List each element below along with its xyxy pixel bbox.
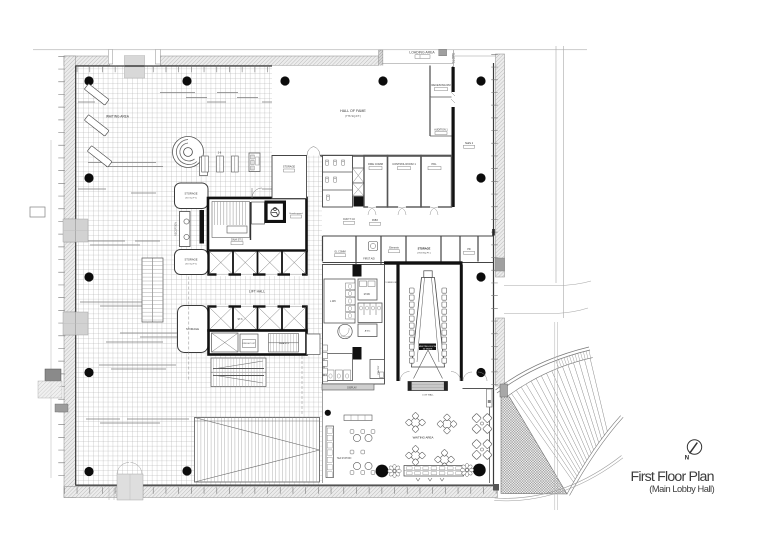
svg-text:LOW WALL: LOW WALL	[422, 394, 434, 397]
svg-text:ST-6: ST-6	[237, 318, 243, 321]
svg-text:PD: PD	[467, 248, 471, 251]
svg-text:FREIGHT LIFT: FREIGHT LIFT	[243, 343, 257, 345]
svg-text:GL COMM: GL COMM	[334, 251, 345, 254]
svg-text:(XX SQ.FT.): (XX SQ.FT.)	[185, 264, 197, 266]
svg-text:(Main Lobby Hall): (Main Lobby Hall)	[649, 484, 715, 494]
svg-text:STORAGE: STORAGE	[184, 192, 197, 196]
svg-text:L WC: L WC	[330, 300, 336, 303]
svg-text:AUDITION 1: AUDITION 1	[434, 129, 448, 132]
svg-text:RECEIVING RM: RECEIVING RM	[431, 83, 450, 87]
svg-text:(78.8 SQ.FT.): (78.8 SQ.FT.)	[417, 253, 430, 255]
svg-text:STORAGE: STORAGE	[186, 327, 199, 331]
svg-text:CORRIDOR: CORRIDOR	[385, 282, 397, 284]
svg-text:FIRST AID: FIRST AID	[363, 258, 375, 261]
svg-text:LIFT HALL: LIFT HALL	[249, 290, 265, 294]
svg-text:DN/A ST-2: DN/A ST-2	[231, 239, 243, 242]
svg-text:A WC: A WC	[365, 330, 371, 333]
svg-text:CONTROL ROOM 1: CONTROL ROOM 1	[392, 162, 416, 166]
svg-text:LOADING AREA: LOADING AREA	[409, 51, 435, 55]
svg-text:HALL OF FAME: HALL OF FAME	[340, 109, 366, 113]
svg-text:DUCT T-16: DUCT T-16	[343, 219, 355, 221]
svg-text:TEA STATION: TEA STATION	[337, 457, 352, 460]
svg-text:STORAGE: STORAGE	[418, 247, 431, 251]
svg-text:RECEPTION: RECEPTION	[175, 222, 178, 236]
svg-text:FIRE COMM: FIRE COMM	[368, 162, 383, 166]
svg-text:Elements: Elements	[389, 247, 399, 250]
svg-text:First Floor Plan: First Floor Plan	[631, 469, 715, 485]
svg-text:DN/A ST-1: DN/A ST-1	[279, 342, 290, 345]
svg-text:(776 SQ.FT.): (776 SQ.FT.)	[345, 114, 361, 118]
svg-text:Staffs 2: Staffs 2	[465, 142, 474, 145]
svg-text:STORAGE: STORAGE	[184, 258, 197, 262]
svg-text:WAITING AREA: WAITING AREA	[106, 115, 130, 119]
svg-text:WAITING AREA: WAITING AREA	[413, 436, 434, 440]
svg-text:(XX SQ.FT.): (XX SQ.FT.)	[185, 198, 197, 200]
svg-text:PABX: PABX	[372, 219, 378, 222]
svg-text:PDL: PDL	[431, 162, 437, 166]
svg-text:MEETING ROOM: MEETING ROOM	[419, 346, 437, 348]
svg-text:DISPLAY: DISPLAY	[347, 386, 357, 389]
svg-text:34 SEATS: 34 SEATS	[423, 348, 433, 351]
svg-text:STORAGE: STORAGE	[283, 166, 296, 169]
svg-text:M WC: M WC	[364, 294, 371, 296]
svg-text:Handicapped: Handicapped	[290, 213, 304, 215]
svg-text:N: N	[685, 456, 689, 462]
